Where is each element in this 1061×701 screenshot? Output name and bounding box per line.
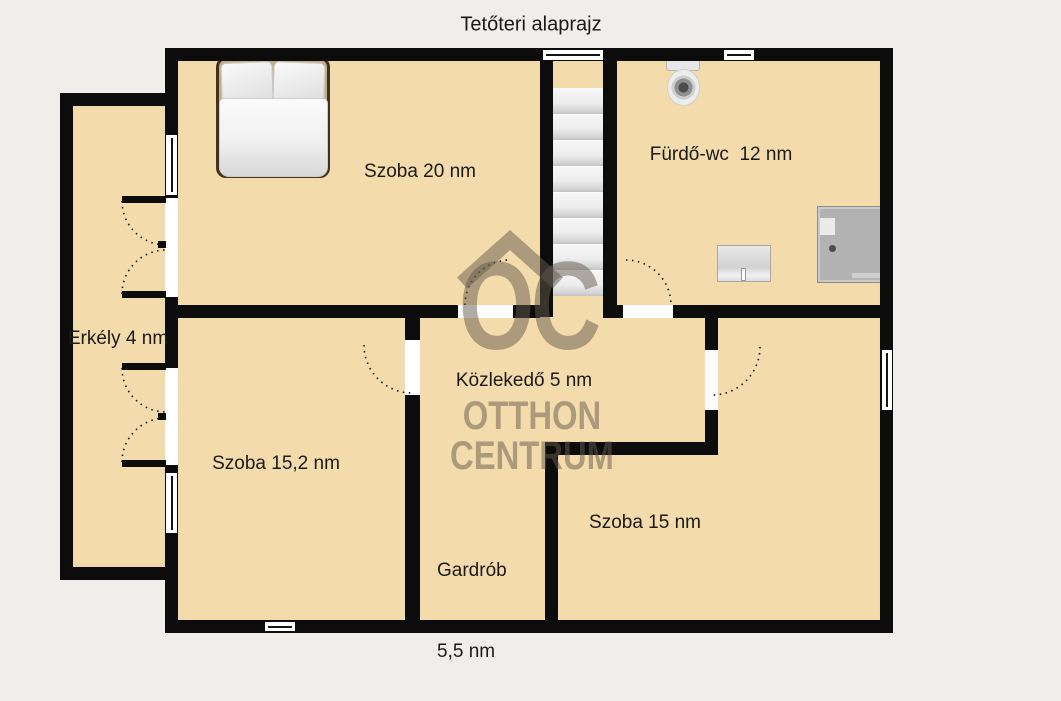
door-arc-balcony1-bottom	[122, 250, 166, 294]
label-furdo-wc: Fürdő-wc 12 nm	[650, 144, 793, 166]
label-erkely: Erkély 4 nm	[68, 328, 168, 350]
floor-plan-canvas: Tetőteri alaprajz	[0, 0, 1061, 701]
door-swing-arcs	[0, 0, 1061, 701]
label-szoba15: Szoba 15 nm	[589, 512, 701, 534]
door-arc-szoba152	[364, 345, 412, 393]
door-arc-balcony2-bottom	[122, 418, 166, 462]
door-arc-szoba15	[712, 347, 760, 395]
label-szoba20: Szoba 20 nm	[364, 161, 476, 183]
label-kozlekedo: Közlekedő 5 nm	[456, 370, 592, 392]
label-gardrob: Gardrób 5,5 nm	[437, 503, 507, 701]
label-gardrob-area: 5,5 nm	[437, 638, 507, 665]
door-arc-balcony2-top	[122, 368, 166, 412]
door-arcs-group	[122, 201, 760, 462]
label-szoba152: Szoba 15,2 nm	[212, 453, 340, 475]
door-arc-bathroom	[626, 260, 671, 305]
door-arc-balcony1-top	[122, 201, 166, 245]
label-gardrob-name: Gardrób	[437, 557, 507, 584]
plan-title: Tetőteri alaprajz	[460, 14, 601, 37]
door-arc-szoba20	[465, 260, 510, 305]
